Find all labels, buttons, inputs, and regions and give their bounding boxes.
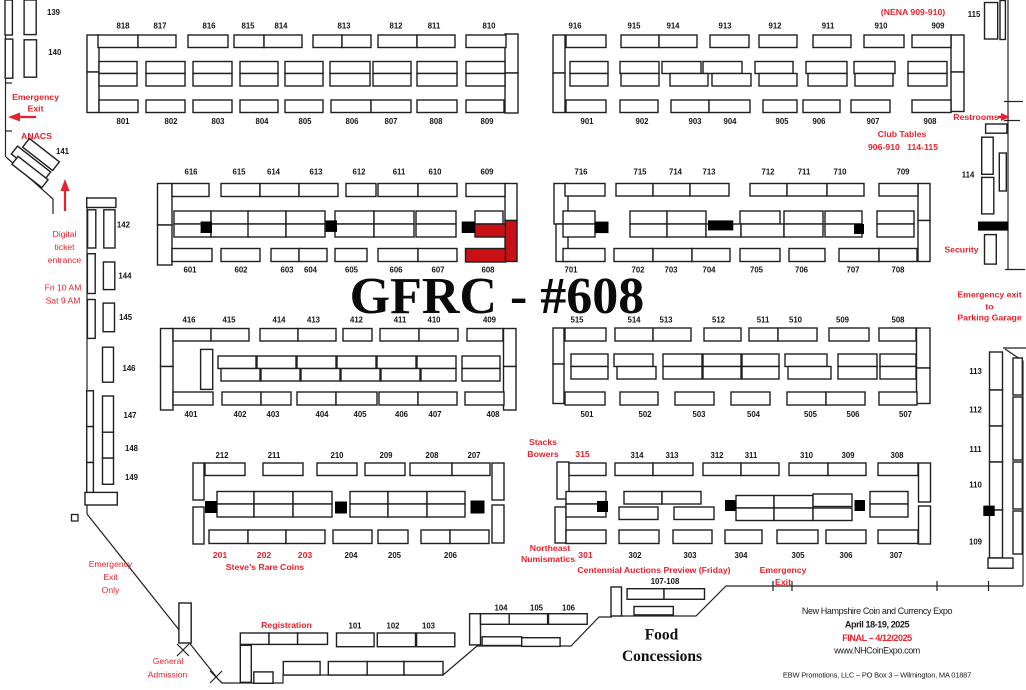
svg-text:811: 811 (428, 22, 441, 31)
svg-text:Bowers: Bowers (527, 449, 559, 459)
svg-text:911: 911 (822, 22, 835, 31)
svg-text:114: 114 (962, 171, 975, 180)
svg-text:Security: Security (944, 245, 978, 255)
svg-text:711: 711 (798, 168, 811, 177)
svg-text:Centennial Auctions Preview (F: Centennial Auctions Preview (Friday) (577, 565, 730, 575)
svg-text:201: 201 (213, 550, 228, 560)
svg-text:703: 703 (664, 266, 678, 275)
svg-text:Emergency: Emergency (760, 565, 807, 575)
svg-text:906-910 114-115: 906-910 114-115 (868, 142, 938, 152)
svg-text:313: 313 (665, 451, 679, 460)
svg-text:712: 712 (761, 168, 775, 177)
svg-text:613: 613 (309, 168, 323, 177)
svg-text:615: 615 (232, 168, 246, 177)
svg-text:414: 414 (272, 316, 286, 325)
svg-text:705: 705 (750, 266, 764, 275)
svg-text:816: 816 (202, 22, 216, 31)
svg-text:New Hampshire Coin and Currenc: New Hampshire Coin and Currency Expo (802, 606, 953, 616)
svg-text:304: 304 (734, 551, 748, 560)
svg-text:212: 212 (215, 451, 229, 460)
svg-text:601: 601 (183, 266, 197, 275)
svg-text:308: 308 (890, 451, 904, 460)
svg-text:302: 302 (628, 551, 642, 560)
svg-text:910: 910 (874, 22, 888, 31)
svg-text:Emergency: Emergency (12, 92, 59, 102)
svg-text:April 18-19, 2025: April 18-19, 2025 (845, 620, 910, 630)
svg-text:504: 504 (747, 410, 761, 419)
svg-text:603: 603 (280, 266, 294, 275)
svg-text:Digital: Digital (53, 229, 77, 239)
svg-text:609: 609 (480, 168, 494, 177)
svg-text:207: 207 (467, 451, 480, 460)
svg-text:Stacks: Stacks (529, 437, 557, 447)
svg-text:812: 812 (389, 22, 403, 31)
svg-text:112: 112 (969, 406, 982, 415)
svg-text:140: 140 (48, 48, 62, 57)
svg-text:409: 409 (483, 316, 497, 325)
svg-text:802: 802 (164, 117, 178, 126)
svg-text:506: 506 (846, 410, 860, 419)
svg-text:301: 301 (578, 550, 593, 560)
svg-text:916: 916 (568, 22, 582, 31)
svg-text:416: 416 (182, 316, 196, 325)
svg-text:401: 401 (184, 410, 198, 419)
svg-text:104: 104 (494, 604, 508, 613)
svg-text:203: 203 (298, 550, 313, 560)
svg-text:817: 817 (153, 22, 166, 31)
svg-text:912: 912 (768, 22, 782, 31)
svg-text:to: to (985, 302, 993, 312)
svg-text:410: 410 (427, 316, 441, 325)
svg-text:510: 510 (789, 316, 803, 325)
svg-text:Emergency exit: Emergency exit (957, 290, 1021, 300)
svg-text:707: 707 (846, 266, 859, 275)
svg-text:ANACS: ANACS (21, 131, 52, 141)
svg-text:710: 710 (833, 168, 847, 177)
svg-text:810: 810 (482, 22, 496, 31)
svg-text:614: 614 (267, 168, 281, 177)
svg-text:709: 709 (896, 168, 910, 177)
svg-text:147: 147 (123, 411, 136, 420)
svg-text:913: 913 (718, 22, 732, 31)
svg-text:714: 714 (669, 168, 683, 177)
svg-text:EBW Promotions, LLC – PO Box 3: EBW Promotions, LLC – PO Box 3 – Wilming… (783, 671, 971, 680)
svg-text:508: 508 (891, 316, 905, 325)
svg-text:604: 604 (304, 266, 318, 275)
svg-text:815: 815 (241, 22, 255, 31)
svg-text:ticket: ticket (54, 242, 75, 252)
svg-text:509: 509 (836, 316, 850, 325)
svg-text:144: 144 (118, 272, 132, 281)
svg-text:Sat 9 AM: Sat 9 AM (46, 296, 81, 306)
svg-text:204: 204 (344, 551, 358, 560)
svg-text:514: 514 (627, 316, 641, 325)
svg-text:Numismatics: Numismatics (521, 554, 575, 564)
svg-text:406: 406 (395, 410, 409, 419)
svg-text:306: 306 (839, 551, 853, 560)
svg-text:307: 307 (889, 551, 902, 560)
svg-text:109: 109 (969, 538, 983, 547)
svg-text:305: 305 (791, 551, 805, 560)
svg-text:Only: Only (102, 585, 120, 595)
svg-text:413: 413 (307, 316, 321, 325)
svg-text:Admission: Admission (148, 670, 188, 680)
svg-text:entrance: entrance (48, 255, 82, 265)
svg-text:403: 403 (266, 410, 280, 419)
svg-text:806: 806 (345, 117, 359, 126)
svg-text:315: 315 (575, 449, 590, 459)
svg-text:FINAL – 4/12/2025: FINAL – 4/12/2025 (842, 633, 912, 643)
svg-text:704: 704 (702, 266, 716, 275)
svg-text:915: 915 (627, 22, 641, 31)
svg-text:101: 101 (348, 622, 362, 631)
svg-text:909: 909 (931, 22, 945, 31)
svg-text:Fri 10 AM: Fri 10 AM (45, 283, 82, 293)
svg-text:902: 902 (635, 117, 649, 126)
svg-text:809: 809 (480, 117, 494, 126)
svg-text:713: 713 (702, 168, 716, 177)
svg-text:706: 706 (795, 266, 809, 275)
svg-text:111: 111 (969, 445, 982, 454)
svg-text:903: 903 (688, 117, 702, 126)
svg-text:141: 141 (56, 147, 70, 156)
svg-text:Concessions: Concessions (622, 648, 702, 665)
svg-text:512: 512 (712, 316, 726, 325)
svg-text:146: 146 (122, 364, 136, 373)
svg-text:402: 402 (233, 410, 247, 419)
svg-text:904: 904 (723, 117, 737, 126)
svg-text:901: 901 (580, 117, 594, 126)
svg-text:311: 311 (745, 451, 758, 460)
svg-text:312: 312 (710, 451, 724, 460)
svg-text:309: 309 (841, 451, 855, 460)
svg-text:813: 813 (337, 22, 351, 31)
svg-text:503: 503 (692, 410, 706, 419)
svg-text:818: 818 (116, 22, 130, 31)
svg-text:814: 814 (274, 22, 288, 31)
svg-text:716: 716 (574, 168, 588, 177)
svg-text:Exit: Exit (103, 572, 118, 582)
svg-text:715: 715 (633, 168, 647, 177)
svg-text:602: 602 (234, 266, 248, 275)
svg-text:502: 502 (638, 410, 652, 419)
svg-text:405: 405 (353, 410, 367, 419)
svg-text:202: 202 (257, 550, 272, 560)
svg-text:106: 106 (562, 604, 576, 613)
svg-text:803: 803 (211, 117, 225, 126)
svg-text:Parking Garage: Parking Garage (957, 313, 1021, 323)
svg-text:(NENA 909-910): (NENA 909-910) (881, 7, 945, 17)
svg-text:110: 110 (969, 481, 982, 490)
svg-text:115: 115 (968, 10, 981, 19)
svg-text:113: 113 (969, 367, 982, 376)
svg-text:515: 515 (570, 316, 584, 325)
svg-text:Restrooms: Restrooms (953, 112, 999, 122)
svg-text:Exit: Exit (775, 577, 791, 587)
svg-text:206: 206 (444, 551, 458, 560)
svg-text:808: 808 (429, 117, 443, 126)
svg-text:Emergency: Emergency (89, 559, 133, 569)
svg-text:708: 708 (891, 266, 905, 275)
svg-text:205: 205 (388, 551, 402, 560)
svg-text:612: 612 (352, 168, 366, 177)
svg-text:801: 801 (116, 117, 130, 126)
svg-text:105: 105 (530, 604, 544, 613)
svg-text:139: 139 (47, 8, 61, 17)
svg-text:505: 505 (804, 410, 818, 419)
svg-text:507: 507 (899, 410, 912, 419)
svg-text:411: 411 (394, 316, 407, 325)
svg-text:210: 210 (330, 451, 344, 460)
svg-text:907: 907 (866, 117, 879, 126)
svg-text:501: 501 (580, 410, 594, 419)
svg-text:807: 807 (384, 117, 397, 126)
svg-text:805: 805 (298, 117, 312, 126)
svg-text:513: 513 (659, 316, 673, 325)
svg-text:148: 148 (125, 444, 139, 453)
svg-text:511: 511 (757, 316, 770, 325)
svg-text:Club Tables: Club Tables (878, 129, 927, 139)
svg-text:www.NHCoinExpo.com: www.NHCoinExpo.com (833, 646, 920, 656)
svg-text:149: 149 (125, 473, 139, 482)
svg-text:611: 611 (393, 168, 406, 177)
svg-text:208: 208 (425, 451, 439, 460)
svg-text:Registration: Registration (261, 620, 312, 630)
svg-text:107-108: 107-108 (651, 577, 680, 586)
svg-text:914: 914 (666, 22, 680, 31)
svg-text:103: 103 (422, 622, 436, 631)
svg-text:Steve’s Rare Coins: Steve’s Rare Coins (226, 562, 305, 572)
svg-text:905: 905 (775, 117, 789, 126)
svg-text:908: 908 (923, 117, 937, 126)
svg-text:404: 404 (315, 410, 329, 419)
svg-text:906: 906 (812, 117, 826, 126)
svg-text:Northeast: Northeast (530, 543, 571, 553)
svg-text:310: 310 (800, 451, 814, 460)
svg-text:Exit: Exit (28, 104, 44, 114)
svg-text:616: 616 (184, 168, 198, 177)
svg-text:314: 314 (630, 451, 644, 460)
svg-text:211: 211 (268, 451, 281, 460)
svg-text:412: 412 (350, 316, 364, 325)
svg-text:102: 102 (386, 622, 400, 631)
svg-text:407: 407 (428, 410, 441, 419)
svg-text:General: General (153, 656, 184, 666)
svg-text:Food: Food (645, 627, 679, 644)
svg-text:408: 408 (486, 410, 500, 419)
svg-text:145: 145 (119, 313, 133, 322)
svg-text:804: 804 (255, 117, 269, 126)
svg-text:415: 415 (222, 316, 236, 325)
svg-text:610: 610 (428, 168, 442, 177)
svg-text:142: 142 (117, 220, 131, 229)
svg-text:303: 303 (683, 551, 697, 560)
svg-text:209: 209 (379, 451, 393, 460)
